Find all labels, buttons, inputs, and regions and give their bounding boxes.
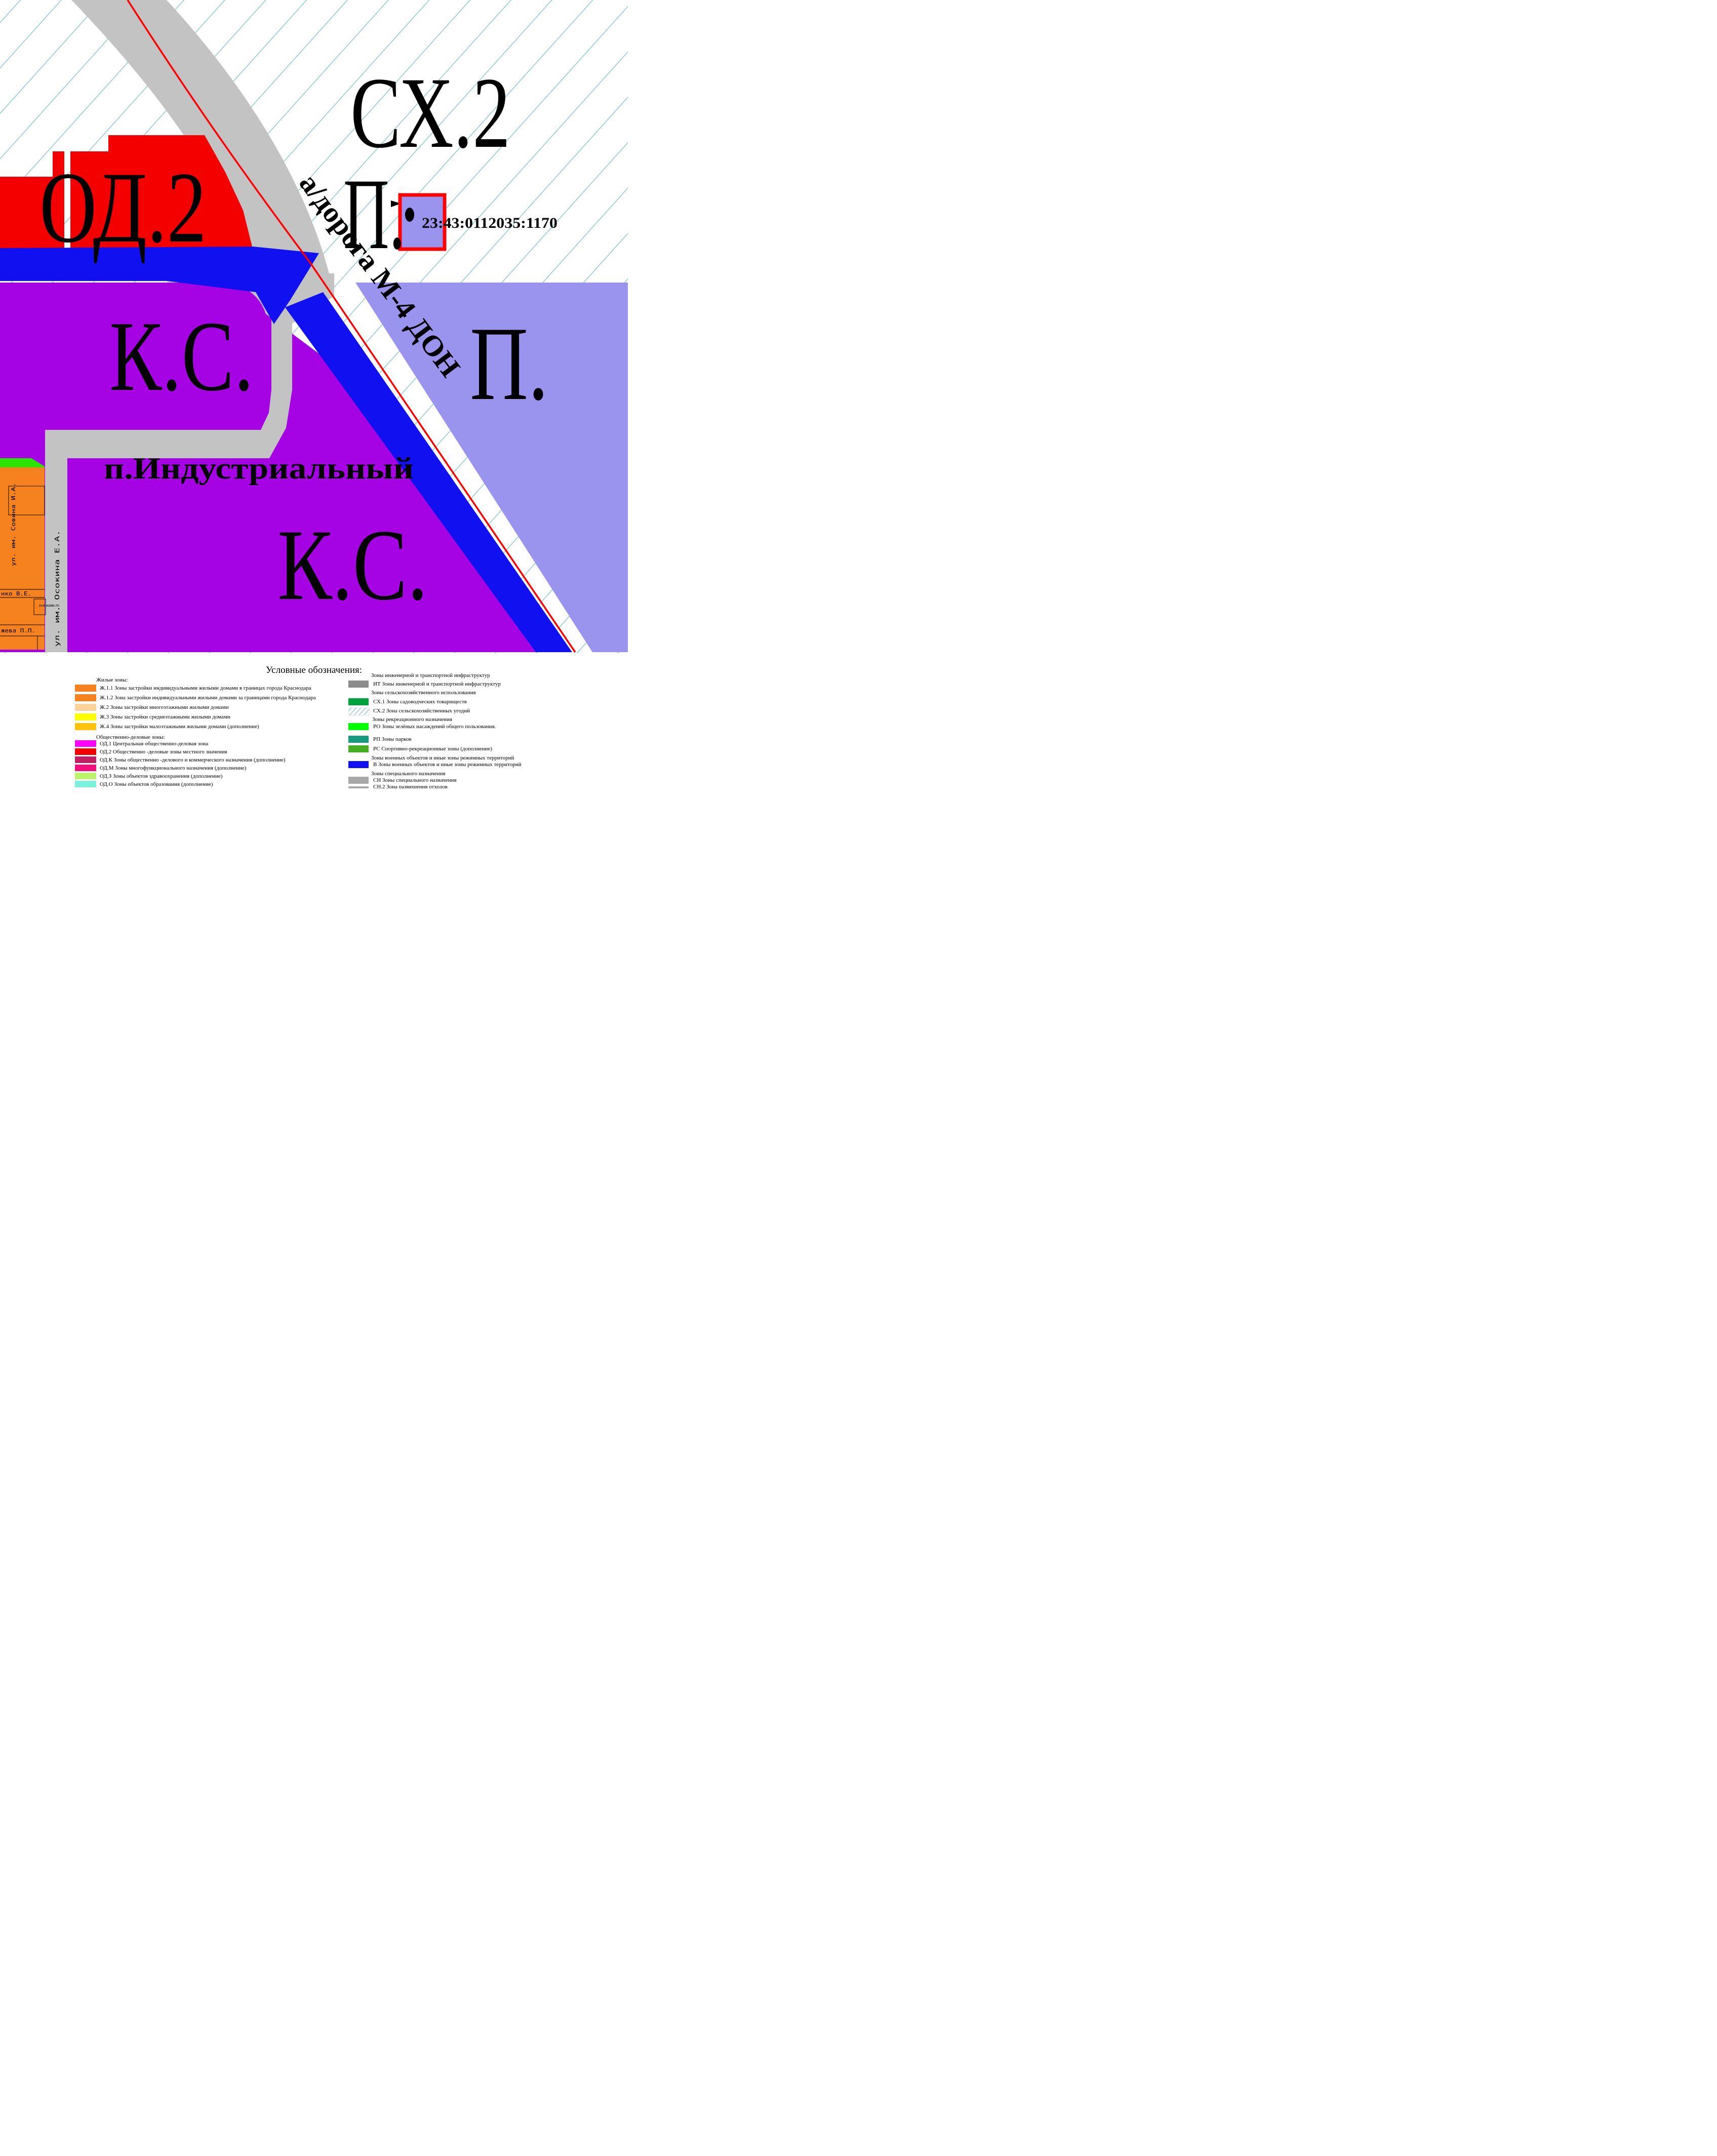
legend-swatch-hatched xyxy=(348,707,370,715)
legend-swatch xyxy=(75,685,96,692)
legend-label: ОД.М Зоны многофункционального назначени… xyxy=(100,765,246,772)
legend-swatch xyxy=(75,748,96,755)
label-street-osokina: ул. им. Осокина Е.А. xyxy=(54,530,61,647)
legend-label: СН.2 Зона размещения отходов xyxy=(373,784,448,788)
legend-swatch xyxy=(348,777,369,784)
label-parcel-highlight-number: 23:43:0112035:1170 xyxy=(422,215,557,231)
zone-zh11-orange xyxy=(0,467,45,650)
legend-label: Ж.1.2 Зона застройки индивидуальными жил… xyxy=(100,695,316,701)
legend-label: РО Зоны зелёных насаждений общего пользо… xyxy=(373,724,496,730)
legend-swatch xyxy=(75,704,96,711)
legend-swatch-partial xyxy=(348,786,369,788)
legend-swatch xyxy=(75,756,96,763)
parcel-point-marker xyxy=(405,208,414,222)
label-street-savina: ул. им. Совина И.А. xyxy=(10,483,17,566)
legend-header: Зоны инженерной и транспортной инфрастру… xyxy=(371,672,490,678)
legend-label: Ж.2 Зоны застройки многоэтажными жилыми … xyxy=(100,704,229,711)
label-zone-ks-upper: К.С. xyxy=(109,300,254,412)
label-zone-ks-lower: К.С. xyxy=(277,509,428,621)
label-zone-p-right: П. xyxy=(470,305,548,422)
legend-swatch xyxy=(348,761,369,768)
legend-swatch xyxy=(348,681,369,688)
legend-swatch xyxy=(348,745,369,752)
legend-label: Ж.3 Зоны застройки среднеэтажными жилыми… xyxy=(100,714,230,721)
legend-label: Ж.4 Зоны застройки малоэтажными жилыми д… xyxy=(100,724,259,730)
legend-label: СХ.2 Зона сельскохозяйственных угодий xyxy=(373,708,470,714)
legend-header: Зоны специального назначения xyxy=(371,771,446,777)
legend-label: ИТ Зоны инженерной и транспортной инфрас… xyxy=(373,681,501,688)
legend-header: Зоны рекреационного назначения xyxy=(372,716,452,723)
legend-label: ОД.О Зоны объектов образования (дополнен… xyxy=(100,781,213,788)
label-zone-od2: ОД.2 xyxy=(39,151,207,264)
legend-label: СН Зоны специального назначения xyxy=(373,777,457,784)
legend-label: РП Зоны парков xyxy=(373,736,412,743)
zoning-map-page: СХ.2 П. ОД.2 К.С. П. п.Индустриальный К.… xyxy=(0,0,628,788)
legend-label: ОД.1 Центральная общественно-деловая зон… xyxy=(100,741,208,747)
legend-swatch xyxy=(348,723,369,730)
legend-label: Ж.1.1 Зоны застройки индивидуальными жил… xyxy=(100,685,311,692)
legend-label: ОД.З Зоны объектов здравоохранения (допо… xyxy=(100,773,222,780)
legend-header: Зоны военных объектов и иные зоны режимн… xyxy=(371,755,514,761)
map-canvas[interactable]: СХ.2 П. ОД.2 К.С. П. п.Индустриальный К.… xyxy=(0,0,628,653)
legend-header: Жилые зоны: xyxy=(96,677,128,683)
legend-header: Общественно-деловые зоны: xyxy=(96,734,165,740)
legend-swatch xyxy=(75,781,96,787)
legend-swatch xyxy=(348,736,369,743)
legend-swatch xyxy=(75,713,96,721)
label-zone-sx2: СХ.2 xyxy=(350,57,510,169)
legend-label: ОД.2 Общественно -деловые зоны местного … xyxy=(100,749,227,755)
legend-label: СХ.1 Зоны садоводческих товариществ xyxy=(373,699,467,705)
legend-label: В Зоны военных объектов и иные зоны режи… xyxy=(373,762,521,768)
legend-swatch xyxy=(348,698,369,705)
legend-swatch xyxy=(75,723,96,730)
legend-swatch xyxy=(75,694,96,701)
label-settlement: п.Индустриальный xyxy=(104,452,414,485)
legend-swatch xyxy=(75,773,96,779)
legend-swatch xyxy=(75,740,96,747)
label-street-pp: жева П.П. xyxy=(1,627,35,634)
legend-label: РС Спортивно-рекреационные зоны (дополне… xyxy=(373,746,492,752)
legend-swatch xyxy=(75,765,96,771)
legend-header: Зоны сельскохозяйственного использования xyxy=(371,690,476,696)
legend-label: ОД.К Зоны общественно -делового и коммер… xyxy=(100,757,286,764)
label-street-ve: нко В.Е. xyxy=(1,590,31,597)
